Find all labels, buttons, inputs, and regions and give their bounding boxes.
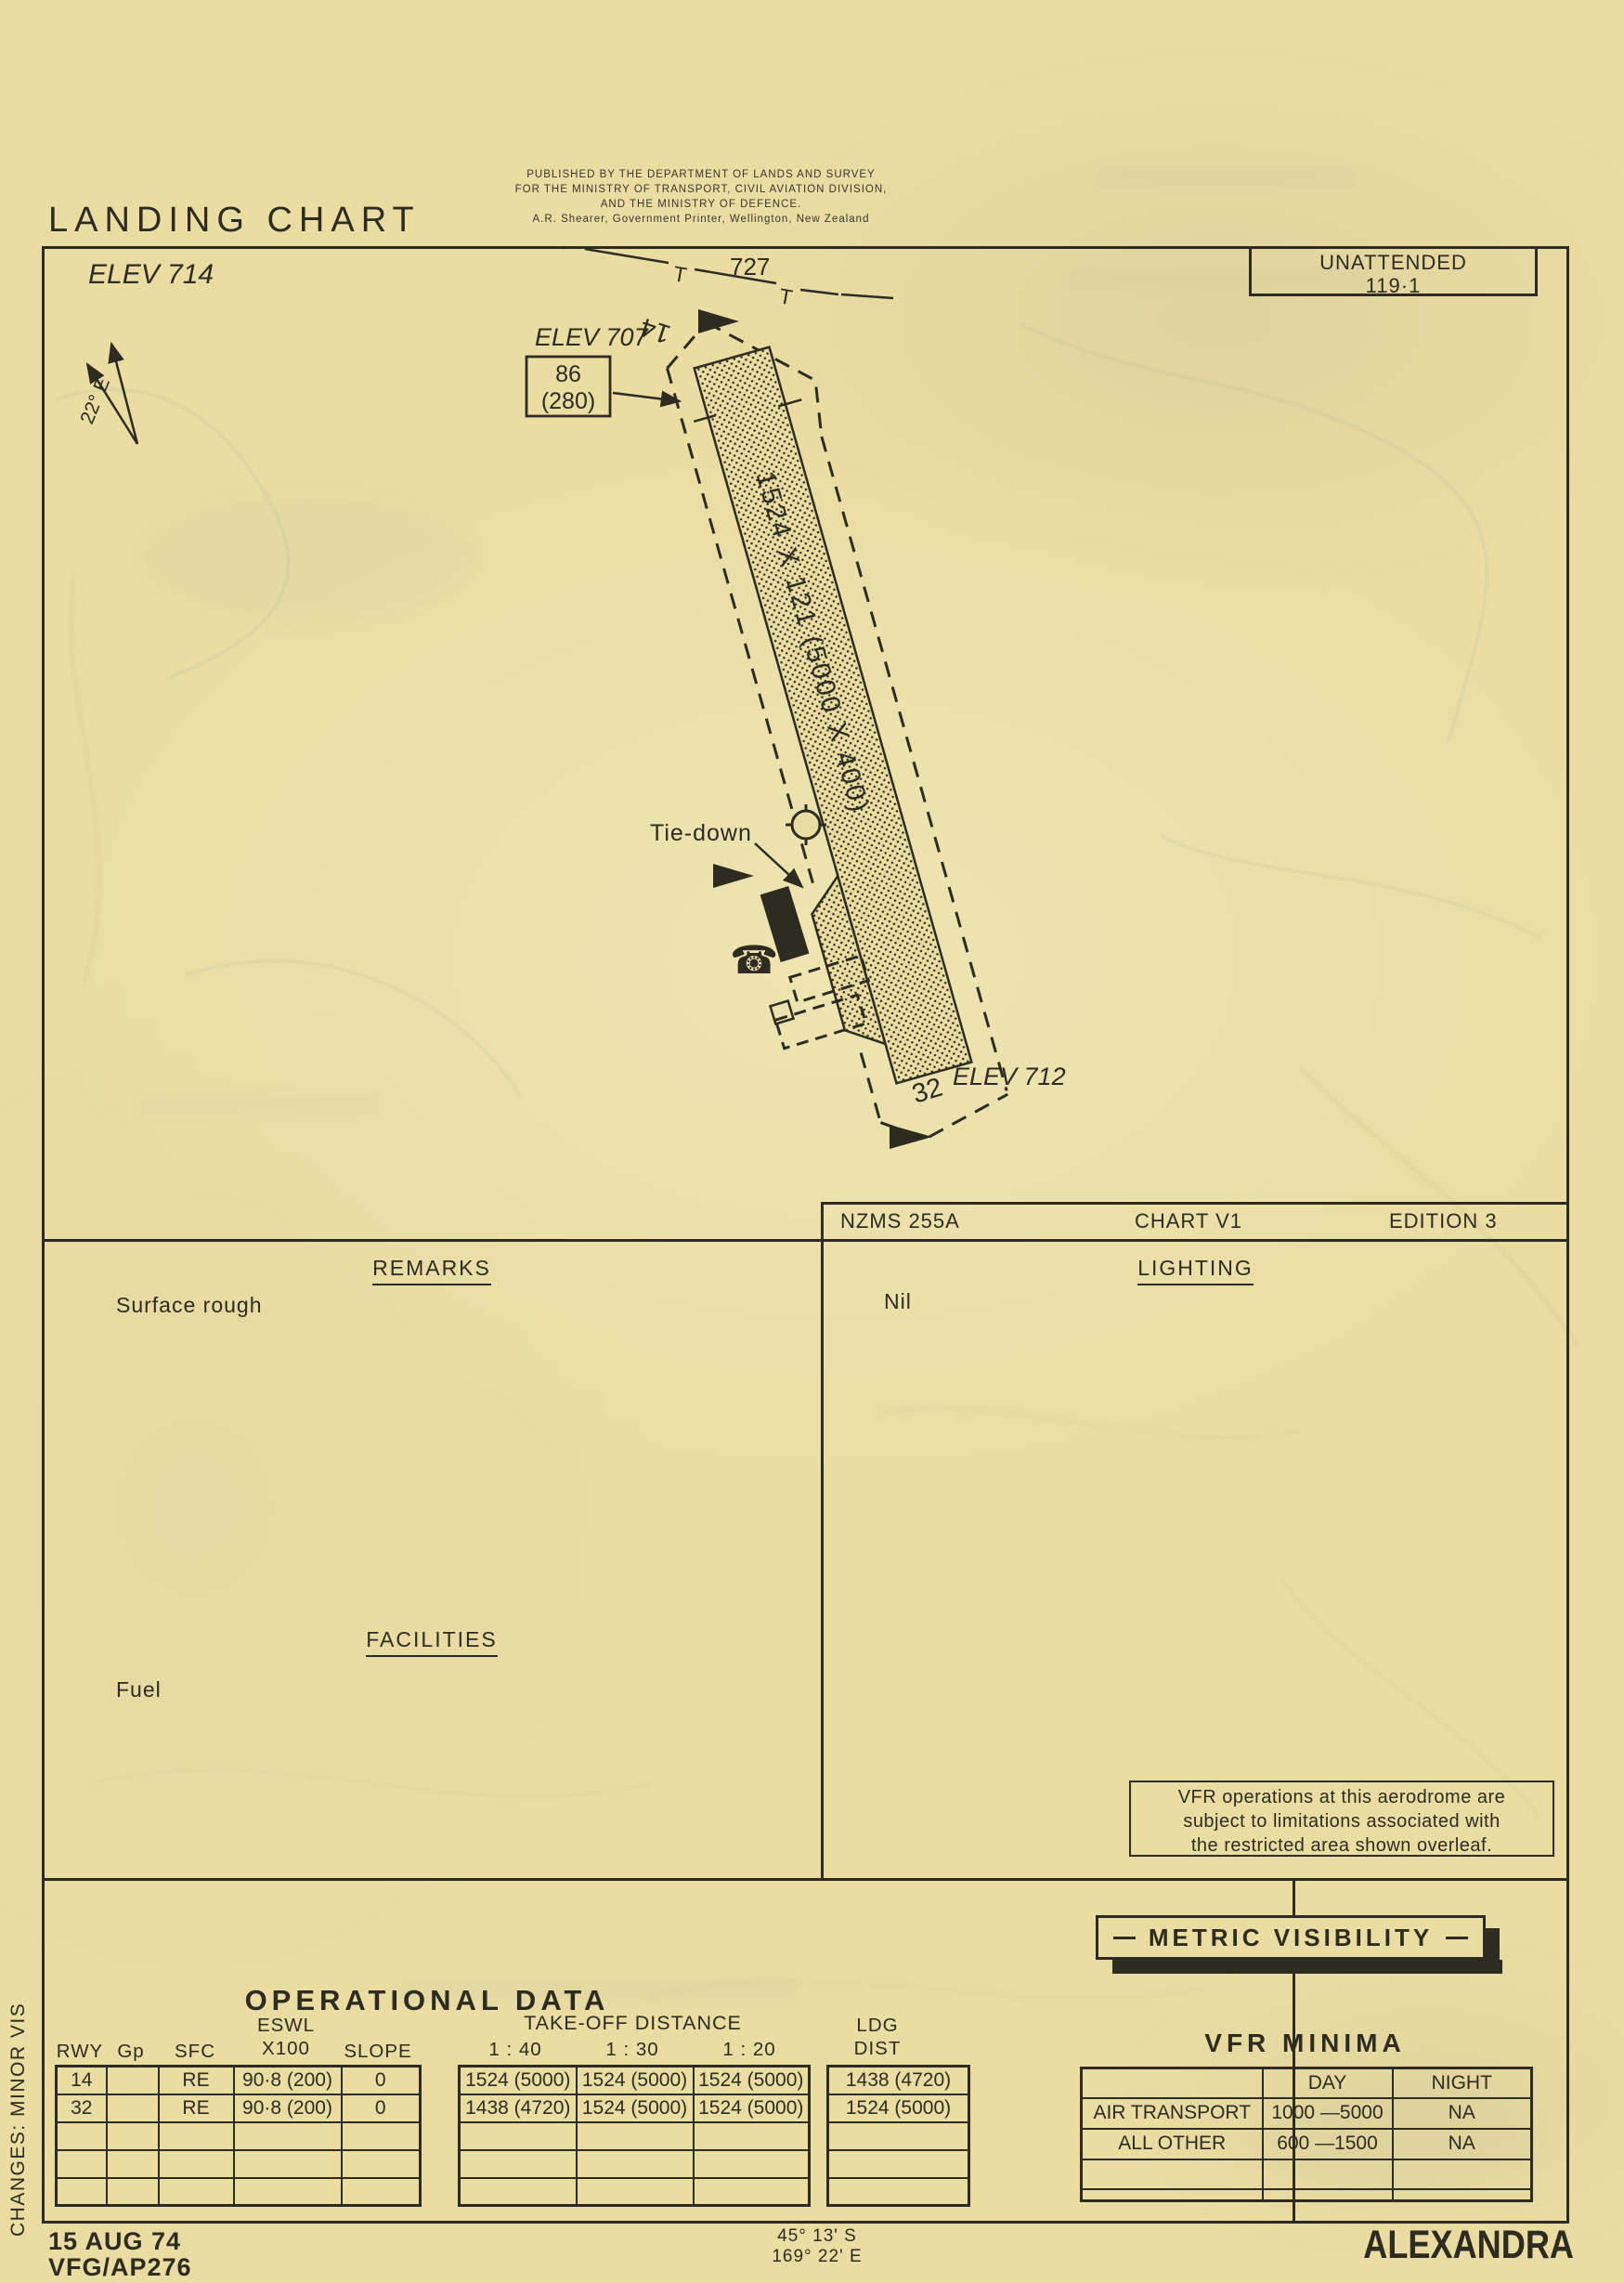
vfr-note-line-2: subject to limitations associated with xyxy=(1131,1809,1553,1833)
cell-gp xyxy=(107,2067,159,2094)
publisher-line-2: FOR THE MINISTRY OF TRANSPORT, CIVIL AVI… xyxy=(483,182,919,197)
runway-data-table: 14 RE 90·8 (200) 0 32 RE 90·8 (200) 0 xyxy=(55,2065,422,2207)
cell-category: AIR TRANSPORT xyxy=(1082,2098,1263,2129)
vfr-minima-title: VFR MINIMA xyxy=(1080,2029,1530,2058)
table-row: ALL OTHER 600 —1500 NA xyxy=(1082,2129,1532,2159)
facilities-heading-text: FACILITIES xyxy=(366,1627,497,1657)
building-outline-small xyxy=(771,1001,794,1024)
page-title: LANDING CHART xyxy=(48,201,421,241)
table-row xyxy=(828,2122,969,2150)
circuit-altitude-value: 86 xyxy=(555,361,581,387)
table-row: 1524 (5000) xyxy=(828,2094,969,2122)
runway-32-flag-icon xyxy=(890,1125,932,1149)
metric-visibility-shadow-bottom xyxy=(1112,1960,1502,1974)
magnetic-variation-arrow: 22° E xyxy=(76,344,137,444)
col-header-gp: Gp xyxy=(103,2040,159,2063)
table-row: 1438 (4720) xyxy=(828,2067,969,2094)
chart-edition: EDITION 3 xyxy=(1389,1209,1498,1233)
facilities-text: Fuel xyxy=(116,1677,162,1702)
cell-day: 600 —1500 xyxy=(1263,2129,1393,2159)
cell-day: 1000 —5000 xyxy=(1263,2098,1393,2129)
vfr-minima-table: DAY NIGHT AIR TRANSPORT 1000 —5000 NA AL… xyxy=(1080,2067,1533,2202)
longitude-label: 169° 22' E xyxy=(734,2247,901,2267)
col-header-ldg-line1: LDG xyxy=(826,2014,929,2037)
lighting-heading-text: LIGHTING xyxy=(1137,1256,1254,1285)
table-row xyxy=(828,2178,969,2206)
table-row xyxy=(1082,2189,1532,2201)
cell-to30: 1524 (5000) xyxy=(577,2067,694,2094)
metric-visibility-title: METRIC VISIBILITY xyxy=(1149,1924,1433,1952)
cell-ldg: 1438 (4720) xyxy=(828,2067,969,2094)
title-dash-left xyxy=(1113,1937,1136,1939)
col-header-eswl-line2: X100 xyxy=(240,2037,332,2060)
table-row: 1438 (4720) 1524 (5000) 1524 (5000) xyxy=(460,2094,810,2122)
cell-to20: 1524 (5000) xyxy=(694,2067,810,2094)
aerodrome-elevation-label: ELEV 714 xyxy=(88,259,214,290)
takeoff-distance-table: 1524 (5000) 1524 (5000) 1524 (5000) 1438… xyxy=(458,2065,811,2207)
facilities-heading: FACILITIES xyxy=(42,1627,822,1652)
cell-night: NA xyxy=(1393,2098,1532,2129)
remarks-text: Surface rough xyxy=(116,1293,262,1318)
cell-night: NA xyxy=(1393,2129,1532,2159)
cell-to30: 1524 (5000) xyxy=(577,2094,694,2122)
cell-to20: 1524 (5000) xyxy=(694,2094,810,2122)
col-header-takeoff: TAKE-OFF DISTANCE xyxy=(458,2012,808,2035)
vfr-note-line-1: VFR operations at this aerodrome are xyxy=(1131,1785,1553,1809)
table-row xyxy=(1082,2159,1532,2189)
runway-strip: 1524 X 121 (5000 X 400) xyxy=(649,298,1022,1152)
bottom-section-divider xyxy=(42,1878,1569,1881)
cell-to40: 1524 (5000) xyxy=(460,2067,577,2094)
cell-rwy: 14 xyxy=(57,2067,107,2094)
cell-slope: 0 xyxy=(342,2094,421,2122)
metric-visibility-shadow-right xyxy=(1486,1928,1500,1974)
cell-to40: 1438 (4720) xyxy=(460,2094,577,2122)
landing-chart-page: LANDING CHART PUBLISHED BY THE DEPARTMEN… xyxy=(0,0,1624,2283)
table-row xyxy=(57,2122,421,2150)
circuit-altitude-agl: (280) xyxy=(541,388,595,414)
col-header-eswl: ESWL X100 xyxy=(240,2014,332,2060)
aerodrome-plan: ELEV 714 22° E T T 727 xyxy=(42,246,1569,1241)
publisher-line-3: AND THE MINISTRY OF DEFENCE. xyxy=(483,197,919,212)
col-header-slope: SLOPE xyxy=(341,2040,415,2063)
table-row xyxy=(57,2178,421,2206)
chart-series: NZMS 255A xyxy=(840,1209,960,1233)
telephone-icon: ☎ xyxy=(730,937,778,983)
cell-ldg: 1524 (5000) xyxy=(828,2094,969,2122)
col-header-day: DAY xyxy=(1263,2068,1393,2098)
table-row xyxy=(460,2122,810,2150)
aerodrome-name: ALEXANDRA xyxy=(1344,2223,1574,2268)
table-row: DAY NIGHT xyxy=(1082,2068,1532,2098)
powerline-t-symbol-2: T xyxy=(777,283,794,309)
cell-sfc: RE xyxy=(159,2067,234,2094)
powerline-t-symbol: T xyxy=(671,261,688,287)
remarks-heading: REMARKS xyxy=(42,1256,822,1281)
elev-707-label: ELEV 707 xyxy=(535,323,649,351)
vfr-note-line-3: the restricted area shown overleaf. xyxy=(1131,1833,1553,1858)
cell-sfc: RE xyxy=(159,2094,234,2122)
powerline: T T 727 xyxy=(520,246,893,309)
cell-eswl: 90·8 (200) xyxy=(234,2067,342,2094)
tiedown-label: Tie-down xyxy=(650,820,752,846)
cell-gp xyxy=(107,2094,159,2122)
spot-height-label: 727 xyxy=(730,253,770,280)
variation-value: 22° E xyxy=(76,374,114,426)
table-row xyxy=(460,2150,810,2178)
table-row: 1524 (5000) 1524 (5000) 1524 (5000) xyxy=(460,2067,810,2094)
col-header-ldg-line2: DIST xyxy=(826,2037,929,2060)
table-row xyxy=(828,2150,969,2178)
lighting-text: Nil xyxy=(884,1289,912,1314)
col-header-night: NIGHT xyxy=(1393,2068,1532,2098)
changes-note: CHANGES: MINOR VIS xyxy=(7,1939,30,2237)
metric-visibility-box: METRIC VISIBILITY xyxy=(1096,1915,1486,1960)
title-dash-right xyxy=(1446,1937,1468,1939)
cell-slope: 0 xyxy=(342,2067,421,2094)
publisher-line-4: A.R. Shearer, Government Printer, Wellin… xyxy=(483,212,919,227)
vfr-restriction-note: VFR operations at this aerodrome are sub… xyxy=(1129,1781,1554,1857)
chart-reference: VFG/AP276 xyxy=(48,2253,192,2282)
col-header-ldg: LDG DIST xyxy=(826,2014,929,2060)
table-row: 14 RE 90·8 (200) 0 xyxy=(57,2067,421,2094)
cell-eswl: 90·8 (200) xyxy=(234,2094,342,2122)
remarks-lighting-divider xyxy=(821,1202,824,1880)
cell-rwy: 32 xyxy=(57,2094,107,2122)
cell-category: ALL OTHER xyxy=(1082,2129,1263,2159)
remarks-heading-text: REMARKS xyxy=(372,1256,491,1285)
latitude-label: 45° 13' S xyxy=(734,2226,901,2247)
col-header-1-30: 1 : 30 xyxy=(586,2038,679,2061)
effective-date: 15 AUG 74 xyxy=(48,2227,181,2256)
col-header-rwy: RWY xyxy=(52,2040,108,2063)
col-header-1-20: 1 : 20 xyxy=(703,2038,796,2061)
table-row xyxy=(460,2178,810,2206)
midfield-flag-icon xyxy=(713,864,754,888)
publisher-imprint: PUBLISHED BY THE DEPARTMENT OF LANDS AND… xyxy=(483,167,919,227)
table-row: AIR TRANSPORT 1000 —5000 NA xyxy=(1082,2098,1532,2129)
table-row: 32 RE 90·8 (200) 0 xyxy=(57,2094,421,2122)
col-header-sfc: SFC xyxy=(167,2040,223,2063)
table-row xyxy=(57,2150,421,2178)
lighting-heading: LIGHTING xyxy=(822,1256,1569,1281)
elev-712-label: ELEV 712 xyxy=(953,1063,1066,1090)
col-header-1-40: 1 : 40 xyxy=(469,2038,562,2061)
col-header-eswl-line1: ESWL xyxy=(240,2014,332,2037)
circuit-altitude-box: 86 (280) xyxy=(526,357,680,416)
publisher-line-1: PUBLISHED BY THE DEPARTMENT OF LANDS AND… xyxy=(483,167,919,182)
landing-distance-table: 1438 (4720) 1524 (5000) xyxy=(826,2065,970,2207)
tiedown-pointer xyxy=(755,843,802,887)
chart-number: CHART V1 xyxy=(1077,1209,1300,1233)
